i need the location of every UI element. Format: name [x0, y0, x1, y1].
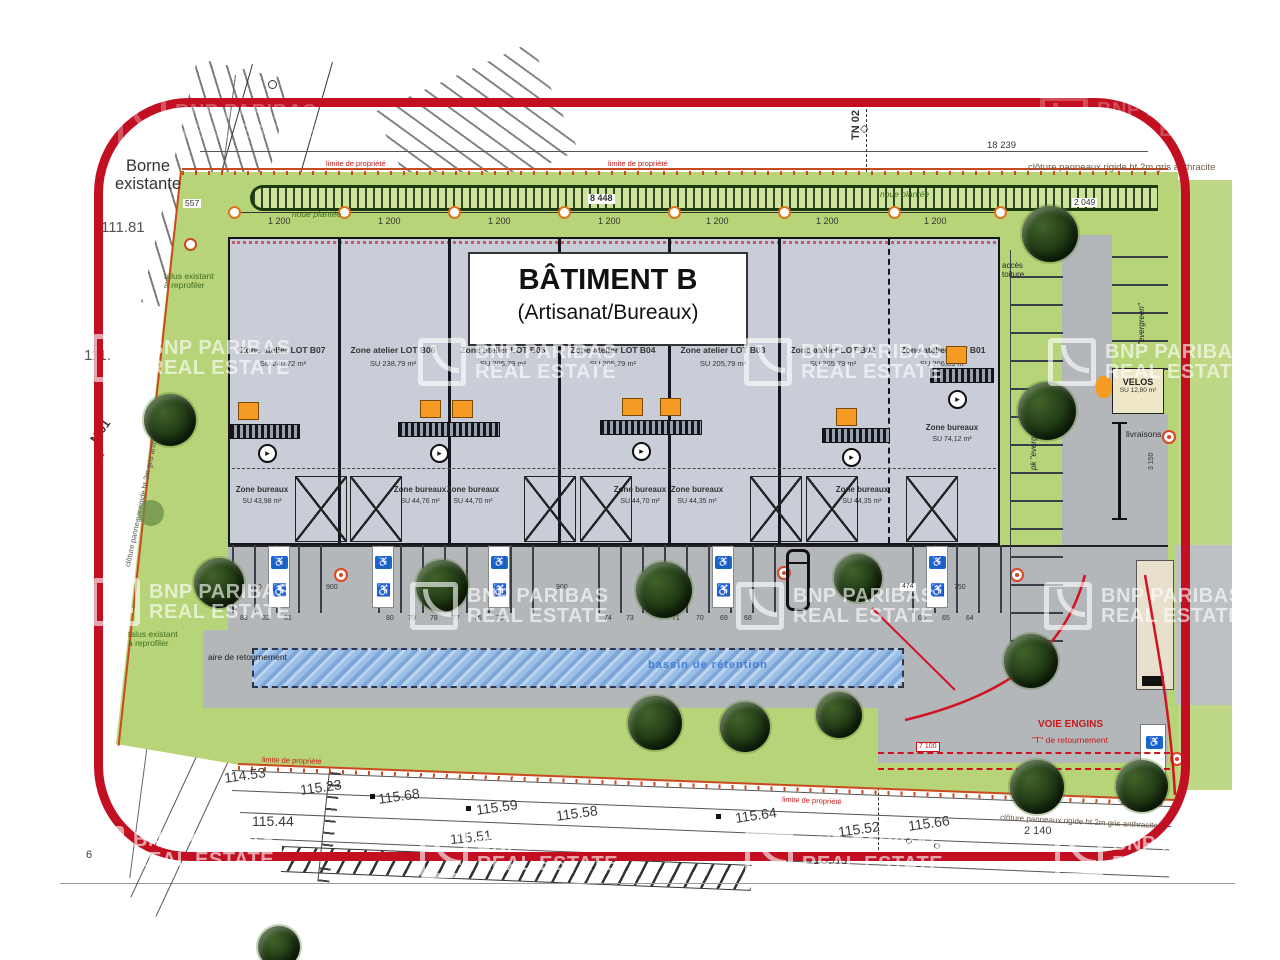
stair-block-icon: [238, 402, 259, 420]
bnp-logo-icon: [1040, 96, 1088, 144]
lot-b07-area: SU 240,72 m²: [231, 360, 335, 368]
bnp-watermark-text: BNP PARIBASREAL ESTATE: [133, 830, 274, 871]
bnp-logo-icon: [1055, 830, 1103, 878]
reserved-cross-box: [580, 476, 632, 542]
dim-marker-icon: [778, 206, 791, 219]
limite-propriete-label: limite de propriété: [782, 796, 842, 807]
tn02-dashed-line: [866, 104, 867, 172]
cloture-note-top: clôture panneaux rigide ht 2m gris anthr…: [1028, 163, 1215, 173]
bnp-watermark: BNP PARIBASREAL ESTATE: [76, 826, 274, 874]
reserved-cross-box: [750, 476, 802, 542]
property-limit-top: [182, 168, 1168, 170]
talus-label-top: talus existant à reprofiler: [164, 272, 218, 290]
lot-b05-area: SU 205,79 m²: [451, 360, 555, 368]
lot-b07-name: Zone atelier LOT B07: [231, 346, 335, 355]
stall-number: 80: [386, 615, 394, 623]
mezzanine-bar: [822, 428, 890, 443]
building-mid-dashed-line: [232, 468, 996, 469]
lot-b06-area: SU 238,79 m²: [341, 360, 445, 368]
lot-b03-name: Zone atelier LOT B03: [671, 346, 775, 355]
dim-1200: 1 200: [268, 217, 291, 227]
handicap-sign-icon: ♿: [375, 556, 392, 569]
stair-block-icon: [420, 400, 441, 418]
dim-marker-icon: [558, 206, 571, 219]
loading-dock-line: [1118, 422, 1121, 520]
voie-engins-label-1: VOIE ENGINS: [1038, 720, 1103, 731]
reserved-cross-box: [295, 476, 347, 542]
door-swing-icon: ▸: [842, 448, 861, 467]
bureaux-area: SU 44,70 m²: [433, 498, 513, 506]
bureaux-area: SU 44,35 m²: [657, 498, 737, 506]
stall-number: 68: [744, 615, 752, 623]
stall-number: 78: [430, 615, 438, 623]
property-limit-top-ticks: [182, 171, 1168, 175]
limite-propriete-label: limite de propriété: [326, 160, 386, 168]
mezzanine-bar: [930, 368, 994, 383]
tree-icon: [720, 702, 770, 752]
stall-number: 69: [720, 615, 728, 623]
stall-number: 79: [408, 615, 416, 623]
dim-1200: 1 200: [924, 217, 947, 227]
stair-block-icon: [946, 346, 967, 364]
hydrant-icon: [1162, 430, 1176, 444]
stair-block-icon: [660, 398, 681, 416]
dim-1200: 1 200: [598, 217, 621, 227]
wheelchair-icon: ♿: [376, 584, 391, 597]
bnp-watermark: BNP PARIBASREAL ESTATE: [1055, 830, 1253, 878]
door-swing-icon: ▸: [948, 390, 967, 409]
velos-marker-icon: [1096, 376, 1112, 398]
bassin-label: bassin de rétention: [648, 660, 768, 672]
survey-marker-circle: [268, 80, 277, 89]
tree-icon: [416, 560, 468, 612]
hydrant-icon: [334, 568, 348, 582]
loading-dock-cap-top: [1112, 422, 1127, 424]
road-hatch-bottom: [281, 846, 752, 891]
bureaux-label-b01: Zone bureaux: [912, 424, 992, 433]
elevation-point: 115.51: [449, 828, 492, 847]
stall-number: 81: [284, 615, 292, 623]
stall-number: 70: [696, 615, 704, 623]
dim-557: 557: [183, 199, 201, 208]
handicap-sign-icon: ♿: [491, 556, 508, 569]
dim-1200: 1 200: [706, 217, 729, 227]
lot-b06-name: Zone atelier LOT B06: [341, 346, 445, 355]
mezzanine-bar: [230, 424, 300, 439]
dim-18239: 18 239: [985, 141, 1018, 151]
dim-1200: 1 200: [488, 217, 511, 227]
handicap-sign-icon: ♿: [715, 556, 732, 569]
elevation-point: 115.59: [475, 797, 518, 818]
reserved-cross-box: [906, 476, 958, 542]
noue-plantee-label: noue plantée: [880, 190, 929, 199]
site-plan-page: Zone atelier LOT B07 SU 240,72 m² Zone a…: [0, 0, 1280, 960]
velos-area: SU 12,80 m²: [1113, 387, 1163, 394]
elevation-111-81: 111.81: [101, 220, 145, 236]
survey-marker-sq-3: [716, 814, 721, 819]
noue-plantee-label: noue plantée: [292, 210, 341, 219]
lot-b01-area: SU 206,89 m²: [891, 360, 995, 368]
asphalt-beyond-frame: [1176, 545, 1232, 705]
tree-icon: [1018, 382, 1076, 440]
tree-icon: [258, 926, 300, 960]
bureaux-area-b01: SU 74,12 m²: [912, 436, 992, 444]
door-swing-icon: ▸: [430, 444, 449, 463]
dim-3150: 3 150: [1148, 452, 1156, 470]
dim-marker-icon: [994, 206, 1007, 219]
building-facade-dotted: [232, 241, 996, 244]
tree-icon: [816, 692, 862, 738]
velos-label: VELOS: [1113, 377, 1163, 387]
tree-icon: [834, 554, 882, 602]
stall-number: 74: [604, 615, 612, 623]
survey-marker-o-2: [934, 843, 940, 849]
dim-8448: 8 448: [588, 194, 615, 204]
lot-b02-area: SU 205,79 m²: [781, 360, 885, 368]
lot-b04-name: Zone atelier LOT B04: [561, 346, 665, 355]
handicap-sign-icon: ♿: [271, 556, 288, 569]
stall-number: 82: [262, 615, 270, 623]
survey-marker-o-1: [906, 838, 912, 844]
talus-label-bottom: talus existant à reprofiler: [128, 630, 182, 648]
bureaux-label: Zone bureaux: [222, 486, 302, 495]
bnp-logo-icon: [118, 98, 166, 146]
stall-number: 83: [240, 615, 248, 623]
elevation-point: 115.44: [252, 814, 294, 829]
stall-number: 76: [474, 615, 482, 623]
aire-retournement-label: aire de retournement: [208, 653, 294, 662]
dim-marker-icon: [448, 206, 461, 219]
tree-icon: [144, 394, 196, 446]
tree-icon: [1116, 760, 1168, 812]
bnp-logo-icon: [745, 830, 793, 878]
bassin-retention-strip: [252, 648, 904, 688]
lot-b05-name: Zone atelier LOT B05: [451, 346, 555, 355]
dim-900: 900: [556, 584, 568, 592]
lot-b03-area: SU 205,79 m²: [671, 360, 775, 368]
shrub-icon: [138, 500, 164, 526]
survey-marker-sq-2: [466, 806, 471, 811]
lot-b04-area: SU 205,79 m²: [561, 360, 665, 368]
reserved-cross-box: [524, 476, 576, 542]
bureaux-area: SU 43,98 m²: [222, 498, 302, 506]
dim-1200: 1 200: [378, 217, 401, 227]
bnp-watermark-text: BNP PARIBASREAL ESTATE: [1112, 834, 1253, 875]
tree-icon: [1004, 634, 1058, 688]
stall-number: 77: [452, 615, 460, 623]
dim-750: 750: [250, 584, 262, 592]
stair-block-icon: [452, 400, 473, 418]
loading-dock-cap-bottom: [1112, 518, 1127, 520]
building-title: BÂTIMENT B: [470, 264, 746, 297]
reserved-cross-box: [806, 476, 858, 542]
survey-line-page-bottom: [60, 883, 1235, 884]
dim-900: 900: [326, 584, 338, 592]
velos-box: VELOS SU 12,80 m²: [1112, 368, 1164, 414]
building-subtitle: (Artisanat/Bureaux): [470, 301, 746, 325]
n01-label: N 01: [88, 417, 113, 445]
voie-engins-label-2: "T" de retournement: [1032, 736, 1108, 745]
stair-block-icon: [836, 408, 857, 426]
tree-icon: [628, 696, 682, 750]
elevation-point: 115.59: [806, 852, 848, 867]
limite-propriete-label: limite de propriété: [608, 160, 668, 168]
livraisons-label: livraisons: [1126, 430, 1161, 439]
dim-2140: 2 140: [1024, 826, 1052, 838]
elevation-point: 115.66: [907, 813, 950, 834]
boundary-marker-icon: [184, 238, 197, 251]
stall-number: 73: [626, 615, 634, 623]
wheelchair-icon: ♿: [716, 584, 731, 597]
tree-icon: [1022, 206, 1078, 262]
noue-plantee-band: [250, 185, 1158, 211]
lot-b01-name: Zone atelier LOT B01: [891, 346, 995, 355]
n01-diamond-icon: ◇: [96, 450, 104, 462]
truck-outline-icon: [786, 549, 810, 611]
elevation-point: 115.64: [734, 805, 777, 826]
wheelchair-icon: ♿: [492, 584, 507, 597]
bnp-watermark: BNP PARIBASREAL ESTATE: [1040, 96, 1238, 144]
dim-marker-icon: [888, 206, 901, 219]
elevation-point: 114.53: [223, 765, 266, 786]
dim-marker-icon: [668, 206, 681, 219]
truck-cab-line: [789, 562, 807, 564]
dim-1200: 1 200: [816, 217, 839, 227]
dim-2049: 2 049: [1072, 198, 1097, 207]
wheelchair-icon: ♿: [272, 584, 287, 597]
dim-7100: 7 100: [916, 742, 940, 752]
bureaux-label: Zone bureaux: [433, 486, 513, 495]
door-swing-icon: ▸: [632, 442, 651, 461]
mezzanine-bar: [398, 422, 500, 437]
tree-icon: [636, 562, 692, 618]
borne-existante-label: Borne existante: [104, 158, 192, 194]
reserved-cross-box: [350, 476, 402, 542]
elevation-point: 115.68: [377, 786, 420, 807]
stall-number: 75: [496, 615, 504, 623]
mezzanine-bar: [600, 420, 702, 435]
elevation-point: 115.58: [555, 803, 598, 824]
elevation-111-partial: 111.: [84, 348, 111, 364]
survey-marker-sq-1: [370, 794, 375, 799]
left-mark-6: 6: [86, 850, 92, 862]
evergreen-label-right: "evergreen": [1138, 303, 1147, 345]
bnp-logo-icon: [76, 826, 124, 874]
survey-diagonal-bottomleft-2: [130, 752, 199, 897]
door-swing-icon: ▸: [258, 444, 277, 463]
tree-icon: [194, 558, 244, 608]
bureaux-label: Zone bureaux: [657, 486, 737, 495]
title-box: BÂTIMENT B (Artisanat/Bureaux): [468, 252, 748, 346]
stair-block-icon: [622, 398, 643, 416]
lot-b02-name: Zone atelier LOT B02: [781, 346, 885, 355]
dim-marker-icon: [228, 206, 241, 219]
tn02-diamond-icon: ◇: [860, 124, 868, 136]
bnp-watermark-text: BNP PARIBASREAL ESTATE: [1097, 100, 1238, 141]
voie-engins-dashed-1: [878, 752, 1170, 754]
tree-icon: [1010, 760, 1064, 814]
